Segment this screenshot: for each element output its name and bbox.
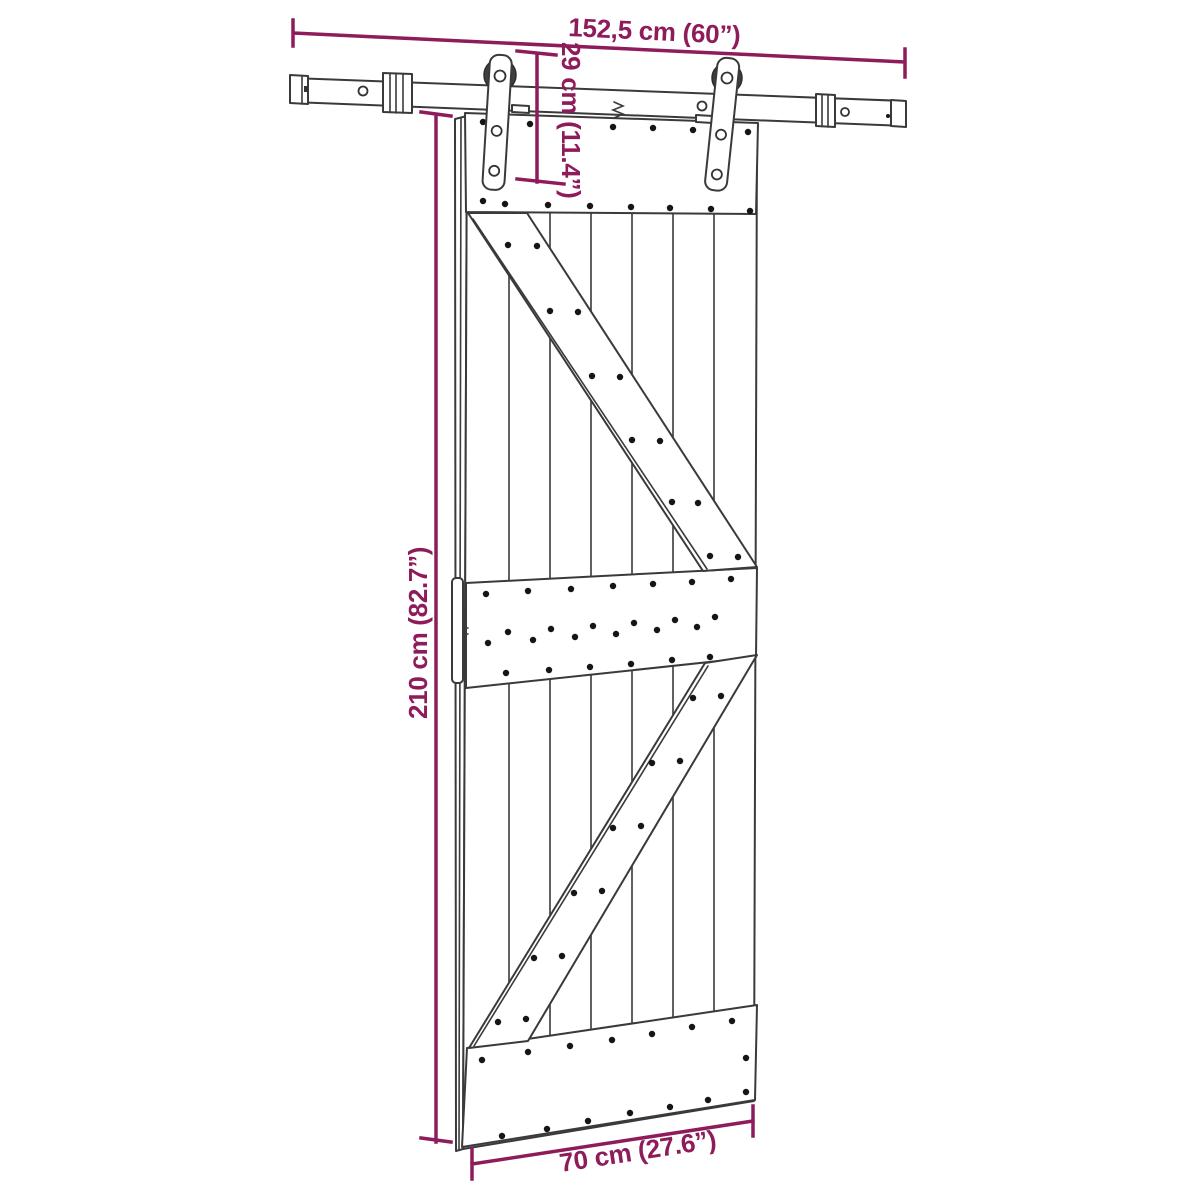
- rail-end-cap-right: [891, 100, 906, 127]
- axle-bolt-hole: [494, 70, 506, 82]
- rail-connector-left: [383, 73, 412, 113]
- rail-hole-1: [359, 87, 368, 96]
- handle-bar: [452, 578, 463, 683]
- dimension-door-height: 210 cm (82.7”): [403, 112, 451, 1142]
- strap-bolt-hole: [716, 129, 727, 140]
- strap-bolt-hole: [491, 126, 502, 137]
- strap-bolt-hole: [711, 169, 722, 180]
- rail-connector-right: [816, 94, 835, 127]
- dim-label-door-height: 210 cm (82.7”): [403, 547, 433, 719]
- door-top-tab-left: [512, 105, 529, 113]
- dimension-track-width: 152,5 cm (60”): [293, 12, 905, 77]
- dim-label-hanger-height: 29 cm (11.4”): [556, 42, 586, 199]
- strap-bolt-hole: [489, 166, 500, 177]
- door-panel: [452, 105, 758, 1151]
- dim-label-door-width: 70 cm (27.6”): [557, 1124, 718, 1178]
- axle-bolt-hole: [721, 72, 733, 84]
- barn-door-dimension-diagram: 152,5 cm (60”) 29 cm (11.4”) 210 cm (82.…: [0, 0, 1200, 1200]
- rail-hole-2: [698, 102, 707, 111]
- dim-label-track-width: 152,5 cm (60”): [568, 12, 741, 50]
- rail-hole-3: [841, 108, 849, 116]
- rail-end-cap-left-slot: [304, 86, 308, 92]
- rail-pin: [886, 114, 890, 118]
- diagram-canvas: 152,5 cm (60”) 29 cm (11.4”) 210 cm (82.…: [0, 0, 1200, 1200]
